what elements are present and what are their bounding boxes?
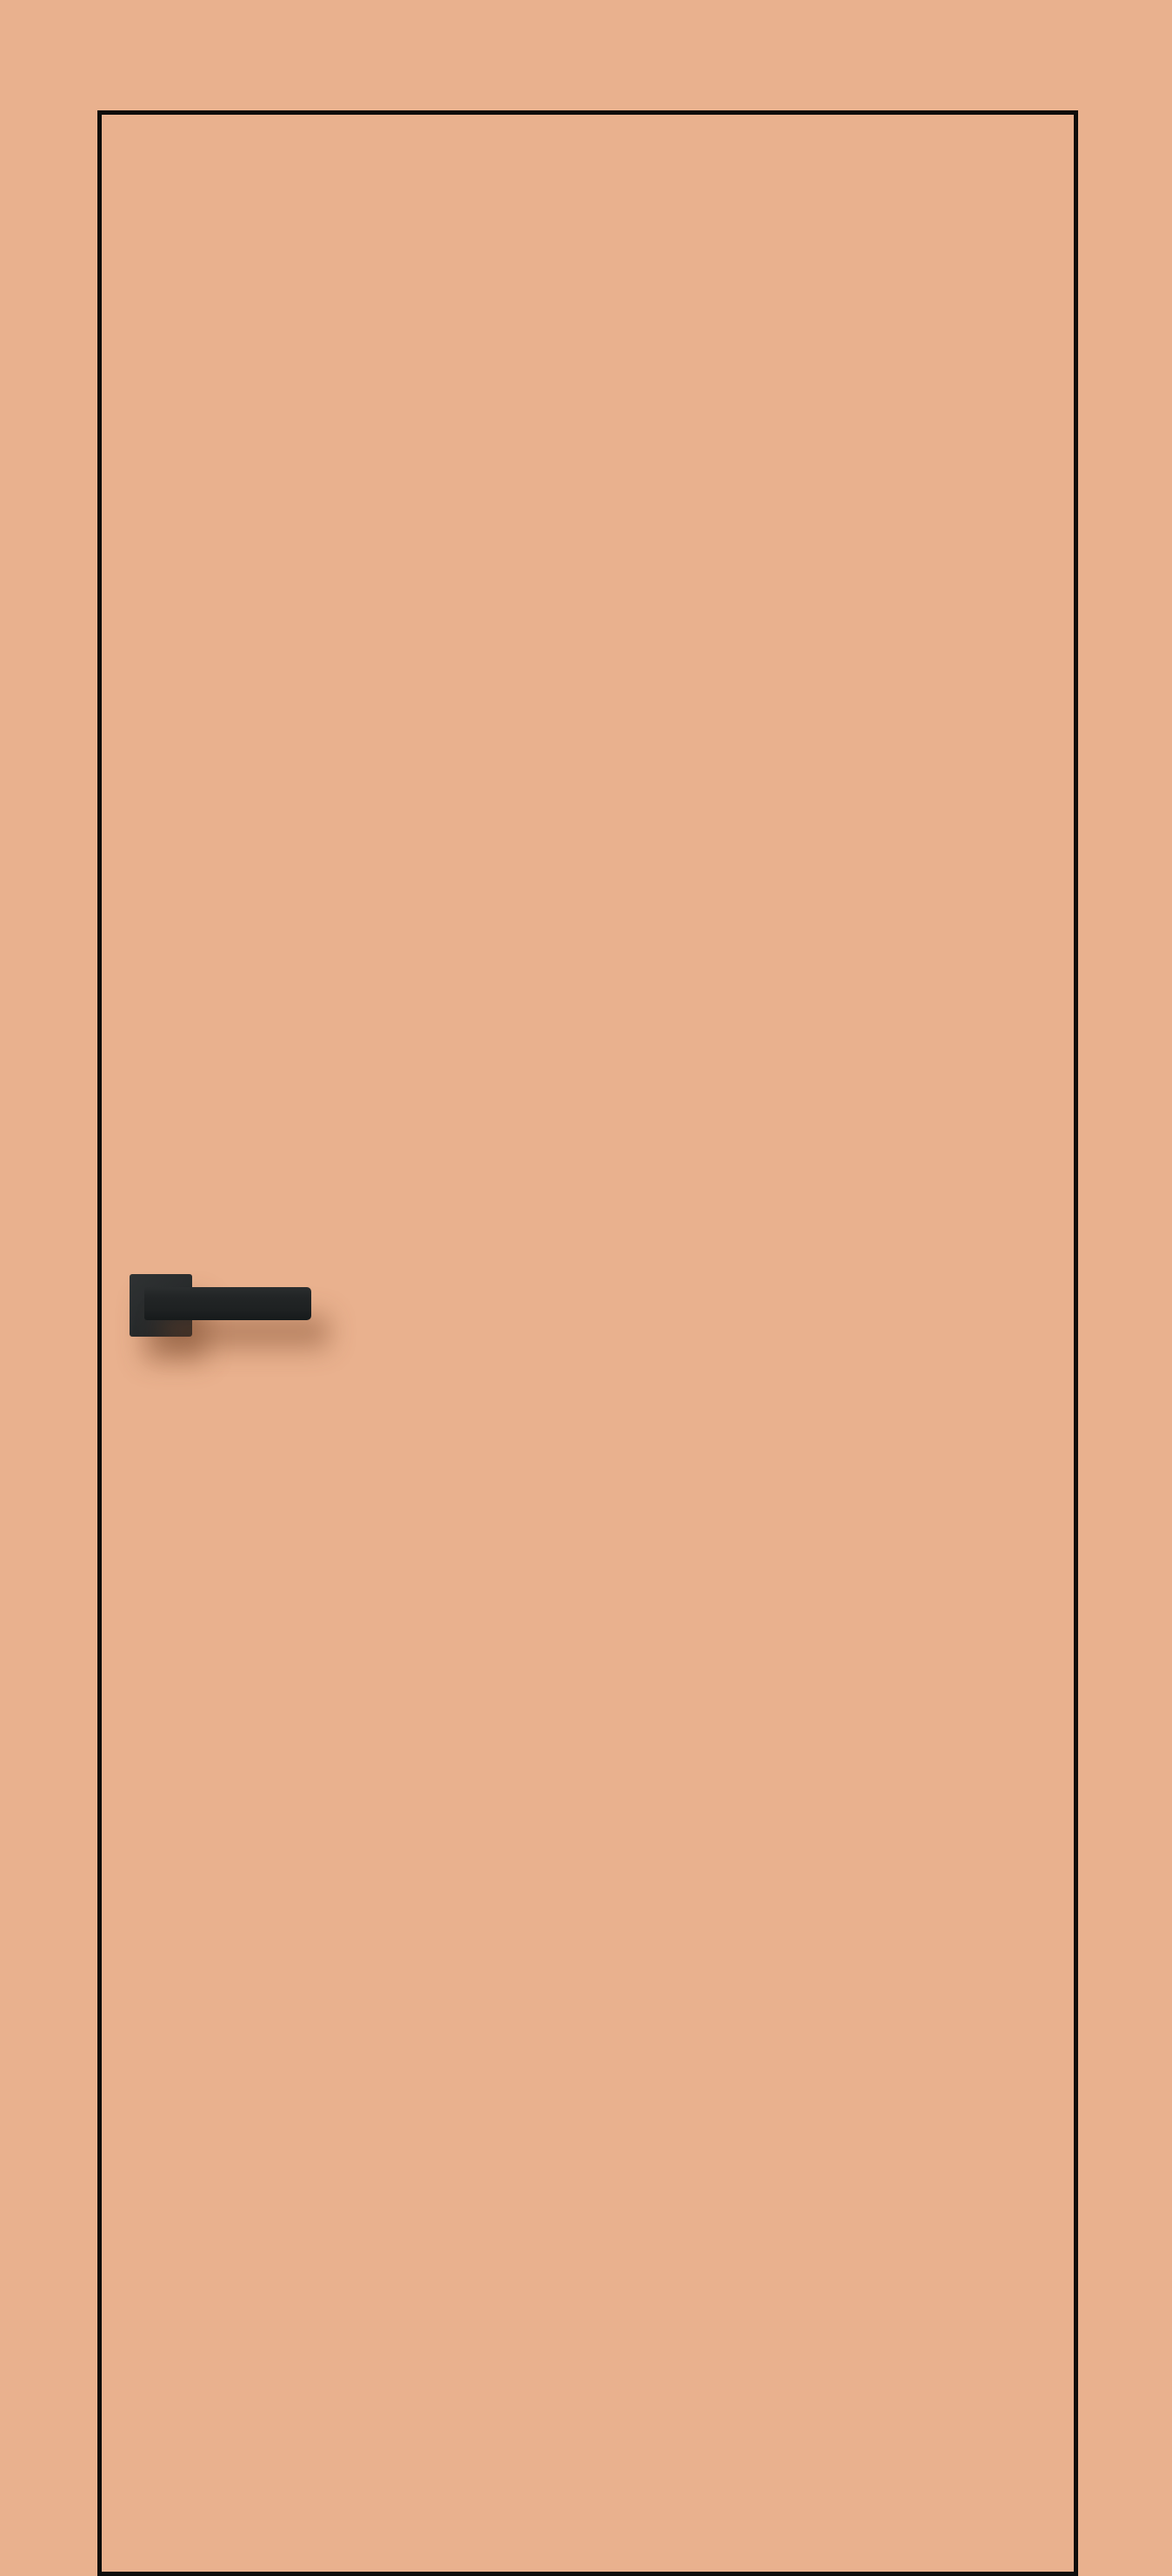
handle-lever xyxy=(144,1287,311,1320)
door-leaf xyxy=(97,110,1078,2576)
wall-background xyxy=(0,0,1172,2576)
